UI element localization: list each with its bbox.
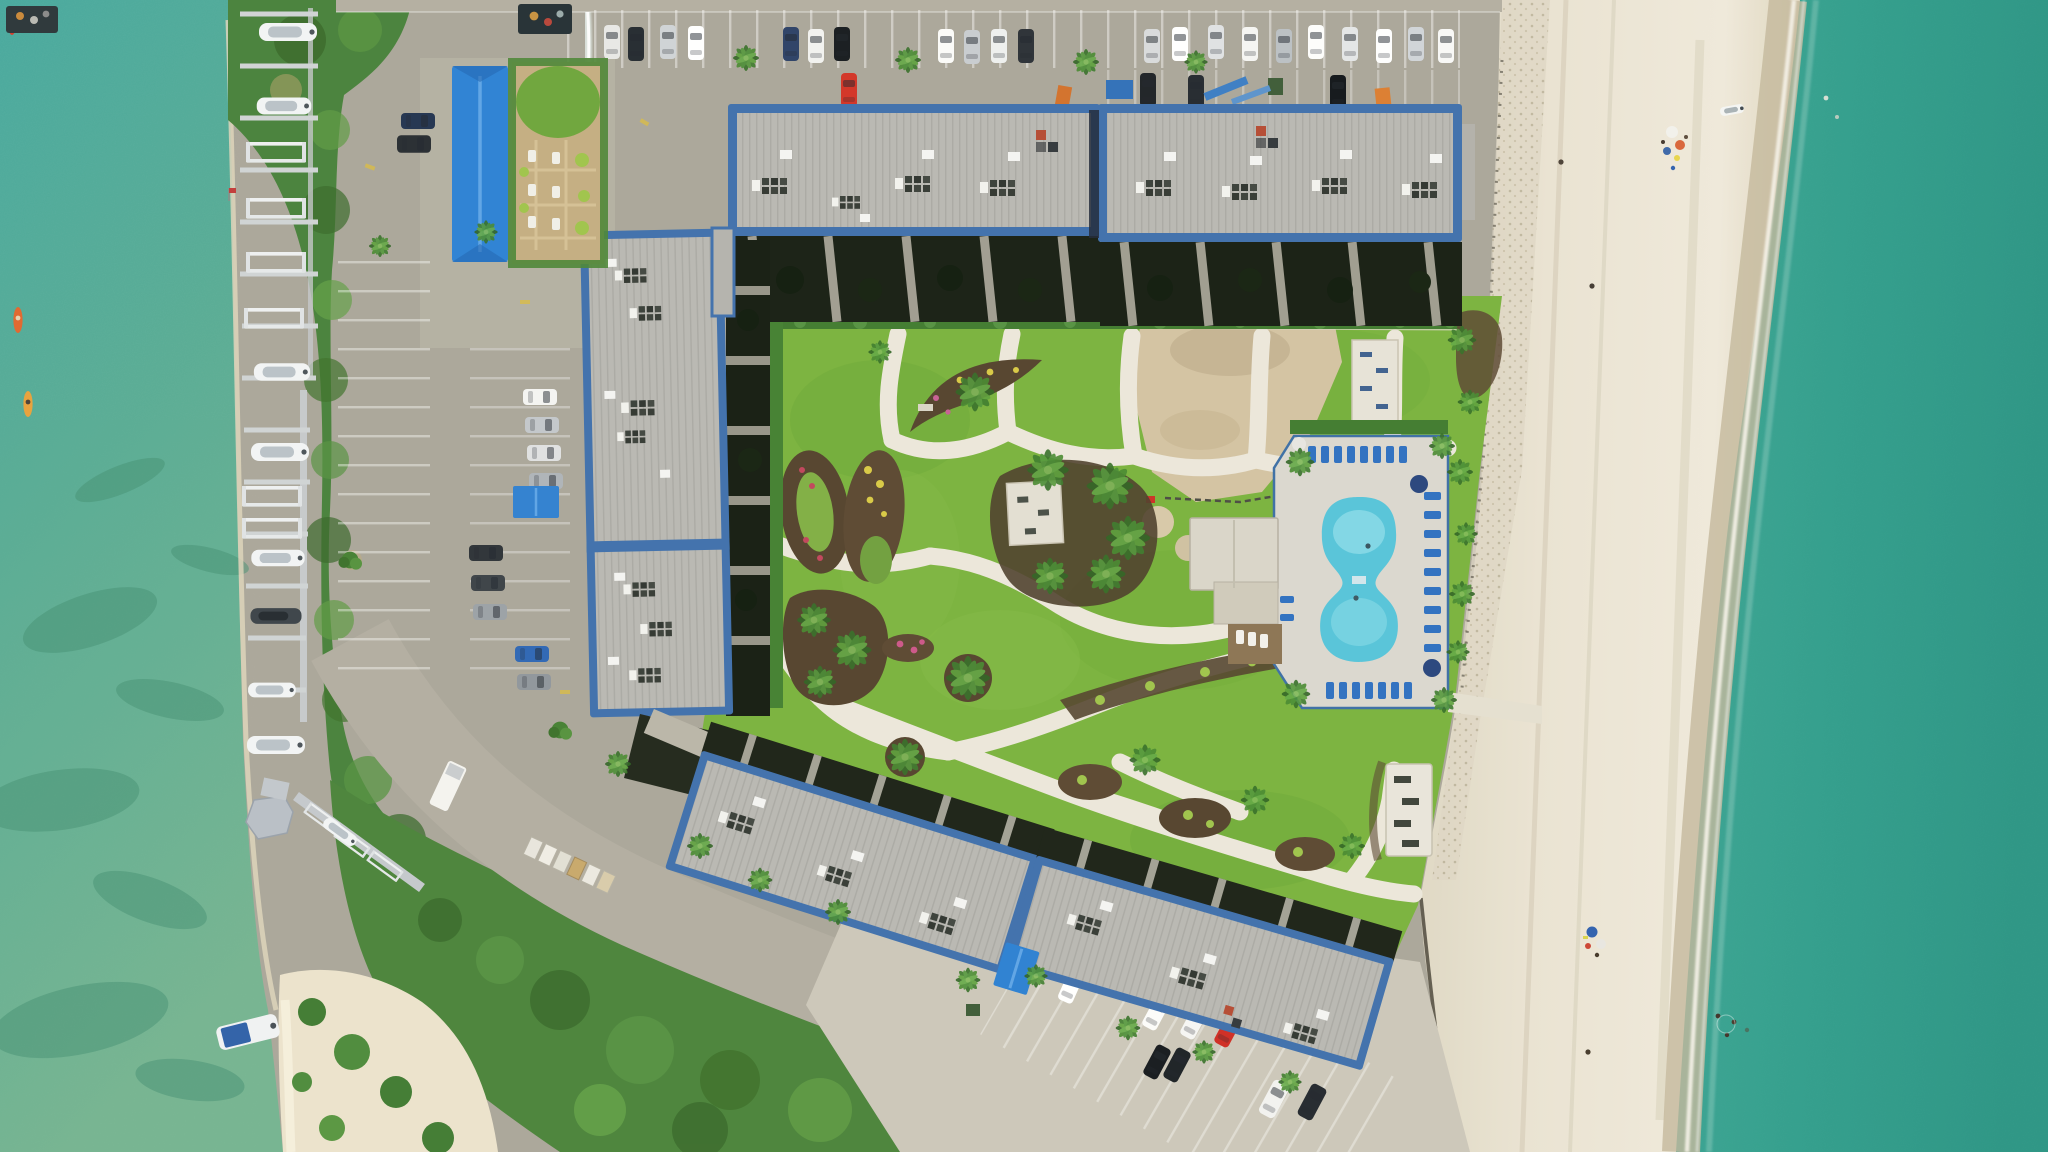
aerial-scene	[0, 0, 2048, 1152]
light-wash	[0, 0, 2048, 1152]
aerial-photo: Aerial drone photo, straight down, of a …	[0, 0, 2048, 1152]
